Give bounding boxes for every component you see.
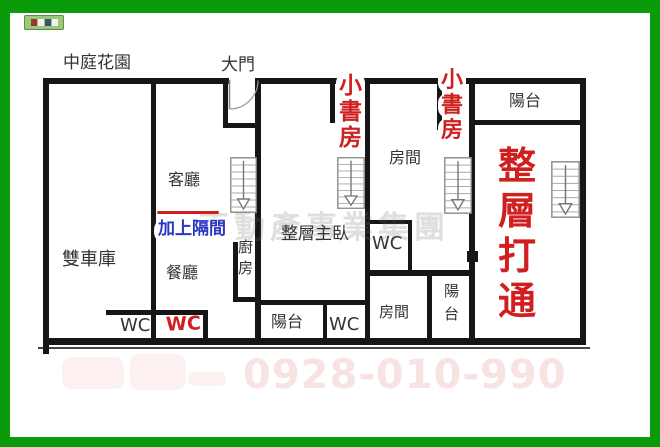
label-wc-unit2: WC xyxy=(329,316,359,335)
label-balcony-unit3: 陽台 xyxy=(444,284,459,323)
annotation-wc-red: WC xyxy=(166,314,202,335)
label-courtyard: 中庭花園 xyxy=(63,55,131,73)
wall-garage-divider xyxy=(151,78,156,345)
staircase-icon xyxy=(444,157,472,214)
badge-glyph xyxy=(45,19,51,26)
watermark-badge xyxy=(24,15,64,30)
wall-unit3-mid xyxy=(368,270,472,276)
wall-room3-balcony3 xyxy=(427,272,432,338)
label-double-garage: 雙車庫 xyxy=(62,251,116,270)
floor-plan: 不動產事業集團 0928-010-990 xyxy=(0,0,660,447)
wall xyxy=(43,78,229,84)
label-balcony-unit2: 陽台 xyxy=(271,314,303,331)
wall xyxy=(362,78,441,84)
annotation-add-partition: 加上隔間 xyxy=(158,221,226,239)
faded-watermark-smudge xyxy=(62,357,124,389)
wall-study1-stub xyxy=(330,78,335,123)
wall xyxy=(464,78,586,84)
label-room-lower: 房間 xyxy=(379,305,409,321)
floor-plan-image: 不動產事業集團 0928-010-990 xyxy=(0,0,660,447)
label-balcony-unit4: 陽台 xyxy=(509,93,541,110)
label-wc-garage: WC xyxy=(120,317,150,336)
door-swing-icon xyxy=(226,77,260,113)
wall-balcony2-wc2 xyxy=(323,300,327,338)
staircase-icon xyxy=(551,161,580,218)
label-dining-room: 餐廳 xyxy=(166,265,198,282)
wall-unit2-bottomrow xyxy=(257,300,370,305)
wall-wcred-right xyxy=(203,310,208,338)
faded-watermark-smudge xyxy=(188,372,226,386)
badge-glyph xyxy=(31,19,37,26)
label-main-gate: 大門 xyxy=(221,57,255,75)
annotation-small-study-2: 小書房 xyxy=(438,69,466,142)
label-master-suite: 整層主臥 xyxy=(281,226,349,244)
bottom-thin-line xyxy=(38,347,590,349)
wall xyxy=(255,78,341,84)
wall-left-outer xyxy=(43,78,49,354)
phone-watermark: 0928-010-990 xyxy=(243,352,567,398)
label-wc-unit3: WC xyxy=(372,235,402,254)
faded-watermark-smudge xyxy=(130,354,186,390)
wall-bump xyxy=(467,251,478,262)
label-kitchen: 廚房 xyxy=(238,240,253,277)
red-underline-annotation xyxy=(157,211,219,214)
staircase-icon xyxy=(337,157,365,209)
badge-glyph xyxy=(52,19,58,26)
wall-right-outer xyxy=(580,78,586,345)
annotation-whole-floor-open: 整層打通 xyxy=(498,147,536,322)
label-living-room: 客廳 xyxy=(168,172,200,189)
badge-glyph xyxy=(38,19,44,26)
annotation-small-study-1: 小書房 xyxy=(336,74,365,150)
wall-balcony4-bottom xyxy=(472,120,586,125)
staircase-icon xyxy=(230,157,257,213)
label-room-upper: 房間 xyxy=(389,150,421,167)
wall-bottom xyxy=(43,338,586,345)
